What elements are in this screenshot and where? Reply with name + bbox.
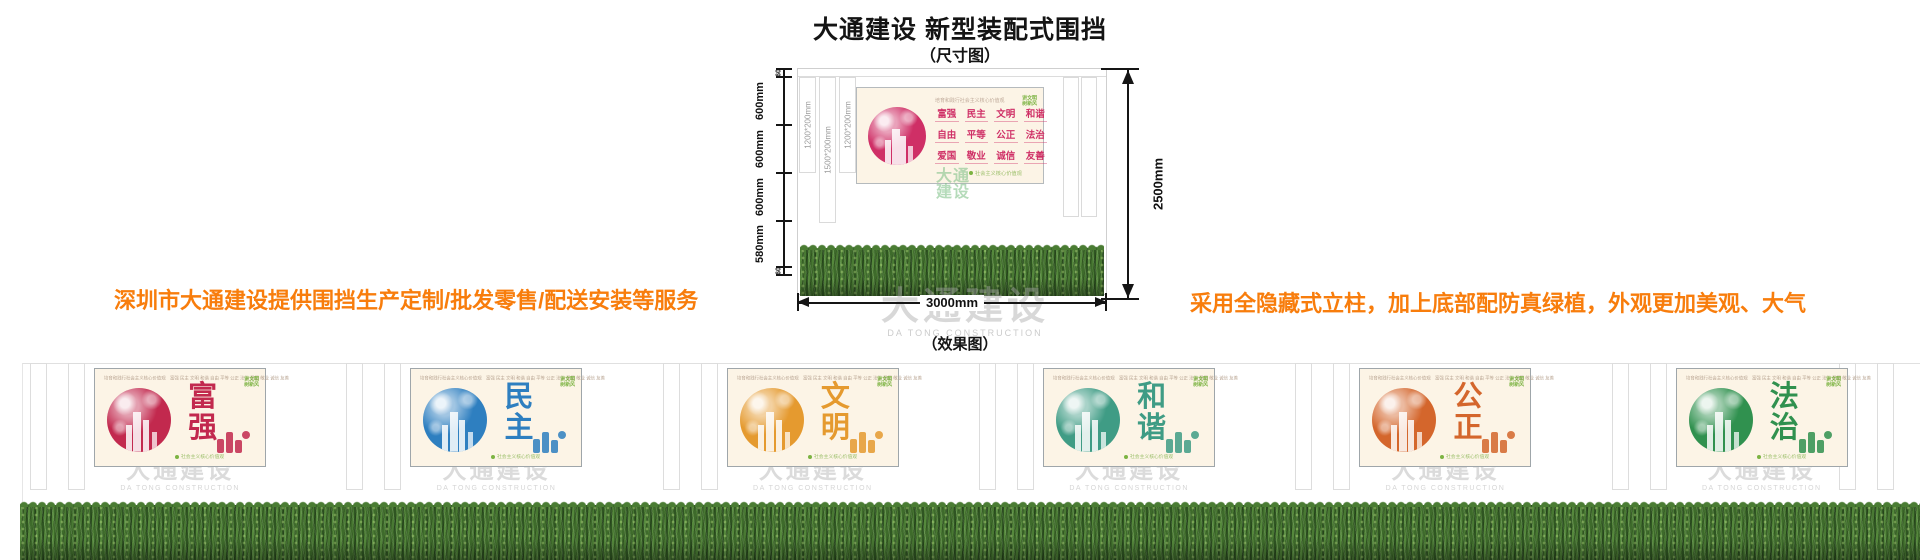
value-item: 平等: [965, 127, 989, 143]
fence-board: [1650, 363, 1667, 490]
fence-board: [701, 363, 718, 490]
fence-board: [1612, 363, 1629, 490]
corner-badge: 讲文明树新风: [1826, 376, 1841, 387]
left-dimension-line: 60 600mm 600mm 600mm 580mm 60: [776, 68, 792, 276]
green-dot-icon: [175, 455, 179, 459]
values-grid: 富强 民主 文明 和谐 自由 平等 公正 法治 爱国 敬业 诚信 友善: [935, 106, 1047, 164]
billboard-minzhu: 培育和践行社会主义核心价值观 富强 民主 文明 和谐 自由 平等 公正 法治 爱…: [410, 368, 582, 467]
effect-fence: 大通建设DA TONG CONSTRUCTION 培育和践行社会主义核心价值观 …: [0, 363, 1920, 560]
value-item: 诚信: [994, 148, 1018, 164]
billboard-footnote: 社会主义核心价值观: [808, 451, 886, 462]
corner-badge: 讲文明树新风: [561, 376, 576, 387]
theme-characters: 法治: [1770, 382, 1799, 444]
billboard-gongzheng: 培育和践行社会主义核心价值观 富强 民主 文明 和谐 自由 平等 公正 法治 爱…: [1359, 368, 1531, 467]
papercut-circle-art: [868, 107, 926, 165]
green-dot-icon: [1757, 455, 1761, 459]
poster-canvas: 大通建设 新型装配式围挡 （尺寸图） 深圳市大通建设提供围挡生产定制/批发零售/…: [0, 0, 1920, 560]
dim-label: 3000mm: [920, 295, 984, 311]
decor-motif-icon: [531, 427, 567, 453]
fence-board: [979, 363, 996, 490]
billboard-wenming: 培育和践行社会主义核心价值观 富强 民主 文明 和谐 自由 平等 公正 法治 爱…: [727, 368, 899, 467]
billboard-footnote: 社会主义核心价值观: [1124, 451, 1202, 462]
fence-board: [1333, 363, 1350, 490]
theme-characters: 文明: [821, 382, 850, 444]
post-size-label: 1200*200mm: [843, 101, 852, 149]
value-item: 文明: [994, 106, 1018, 122]
theme-characters: 富强: [188, 382, 217, 444]
papercut-circle-art: [740, 388, 804, 452]
corner-badge: 讲文明树新风: [244, 376, 259, 387]
fence-post: [1081, 77, 1097, 217]
corner-badge: 讲文明树新风: [877, 376, 892, 387]
dim-segment: 600mm: [776, 76, 792, 124]
papercut-circle-art: [1056, 388, 1120, 452]
green-logo-watermark: 大通 建设: [936, 169, 970, 202]
fence-post: 1200*200mm: [839, 77, 856, 173]
green-dot-icon: [1124, 455, 1128, 459]
feature-note: 采用全隐藏式立柱，加上底部配防真绿植，外观更加美观、大气: [1190, 286, 1806, 318]
value-item: 友善: [1024, 148, 1048, 164]
value-item: 公正: [994, 127, 1018, 143]
fence-bay: 大通建设DA TONG CONSTRUCTION 培育和践行社会主义核心价值观 …: [1604, 363, 1920, 508]
fence-post: 1500*200mm: [819, 77, 836, 223]
decor-motif-icon: [848, 427, 884, 453]
papercut-circle-art: [423, 388, 487, 452]
decor-motif-icon: [1797, 427, 1833, 453]
arrow-down-icon: [1122, 284, 1134, 298]
fence-bay: 大通建设DA TONG CONSTRUCTION 培育和践行社会主义核心价值观 …: [655, 363, 971, 508]
dim-label: 580mm: [754, 225, 766, 263]
corner-badge: 讲文明树新风: [1193, 376, 1208, 387]
service-note: 深圳市大通建设提供围挡生产定制/批发零售/配送安装等服务: [114, 283, 698, 315]
billboard-footnote: 社会主义核心价值观: [1440, 451, 1518, 462]
values-header: 培育和践行社会主义核心价值观: [935, 97, 1004, 104]
decor-motif-icon: [1480, 427, 1516, 453]
page-title: 大通建设 新型装配式围挡: [0, 10, 1920, 46]
fence-board: [384, 363, 401, 490]
papercut-circle-art: [107, 388, 171, 452]
dim-label: 600mm: [754, 82, 766, 120]
theme-characters: 和谐: [1137, 382, 1166, 444]
dim-segment: 600mm: [776, 124, 792, 172]
value-item: 自由: [935, 127, 959, 143]
dim-label: 600mm: [754, 130, 766, 168]
fence-board: [663, 363, 680, 490]
billboard-footnote: 社会主义核心价值观: [1757, 451, 1835, 462]
fence-top-rail: [798, 69, 1106, 77]
fence-board: [346, 363, 363, 490]
fence-bays: 大通建设DA TONG CONSTRUCTION 培育和践行社会主义核心价值观 …: [22, 363, 1920, 508]
decor-motif-icon: [215, 427, 251, 453]
fence-board: [1017, 363, 1034, 490]
green-dot-icon: [808, 455, 812, 459]
fence-post: 1200*200mm: [799, 77, 816, 173]
value-item: 法治: [1024, 127, 1048, 143]
papercut-circle-art: [1372, 388, 1436, 452]
fence-bay: 大通建设DA TONG CONSTRUCTION 培育和践行社会主义核心价值观 …: [338, 363, 654, 508]
dim-segment: 580mm: [776, 220, 792, 266]
fence-board: [1877, 363, 1894, 490]
papercut-circle-art: [1689, 388, 1753, 452]
value-item: 民主: [965, 106, 989, 122]
fence-bay: 大通建设DA TONG CONSTRUCTION 培育和践行社会主义核心价值观 …: [971, 363, 1287, 508]
fence-bay: 大通建设DA TONG CONSTRUCTION 培育和践行社会主义核心价值观 …: [22, 363, 338, 508]
billboard-fuqiang: 培育和践行社会主义核心价值观 富强 民主 文明 和谐 自由 平等 公正 法治 爱…: [94, 368, 266, 467]
arrow-right-icon: [1095, 297, 1107, 307]
bottom-dimension-line: 3000mm: [797, 295, 1107, 311]
dim-segment: 60: [776, 68, 792, 76]
fence-board: [68, 363, 85, 490]
theme-characters: 民主: [504, 382, 533, 444]
fence-board: [30, 363, 47, 490]
post-size-label: 1500*200mm: [823, 126, 832, 174]
fence-board: [1295, 363, 1312, 490]
value-item: 敬业: [965, 148, 989, 164]
corner-badge: 讲文明 树新风: [1022, 95, 1037, 106]
billboard-footnote: 社会主义核心价值观: [491, 451, 569, 462]
theme-characters: 公正: [1453, 382, 1482, 444]
green-dot-icon: [491, 455, 495, 459]
value-item: 爱国: [935, 148, 959, 164]
fence-bay: 大通建设DA TONG CONSTRUCTION 培育和践行社会主义核心价值观 …: [1287, 363, 1603, 508]
dimension-diagram: 60 600mm 600mm 600mm 580mm 60 1200*200mm…: [770, 62, 1170, 362]
fence-post: [1063, 77, 1079, 217]
decor-motif-icon: [1164, 427, 1200, 453]
artificial-hedge: [20, 505, 1920, 560]
fence-drawing: 1200*200mm 1500*200mm 1200*200mm 培育和践行社会…: [797, 68, 1107, 295]
billboard-footnote: 社会主义核心价值观: [175, 451, 253, 462]
right-dimension-line: 2500mm: [1119, 68, 1165, 300]
billboard-fazhi: 培育和践行社会主义核心价值观 富强 民主 文明 和谐 自由 平等 公正 法治 爱…: [1676, 368, 1848, 467]
dim-segment: 60: [776, 266, 792, 274]
arrow-up-icon: [1122, 70, 1134, 84]
value-item: 和谐: [1024, 106, 1048, 122]
dim-label: 600mm: [754, 178, 766, 216]
corner-badge: 讲文明树新风: [1510, 376, 1525, 387]
green-dot-icon: [1440, 455, 1444, 459]
dim-segment: 600mm: [776, 172, 792, 220]
billboard-hexie: 培育和践行社会主义核心价值观 富强 民主 文明 和谐 自由 平等 公正 法治 爱…: [1043, 368, 1215, 467]
value-item: 富强: [935, 106, 959, 122]
dim-segment-end: [776, 274, 792, 276]
arrow-left-icon: [797, 297, 809, 307]
dim-label: 2500mm: [1151, 158, 1166, 210]
post-size-label: 1200*200mm: [803, 101, 812, 149]
